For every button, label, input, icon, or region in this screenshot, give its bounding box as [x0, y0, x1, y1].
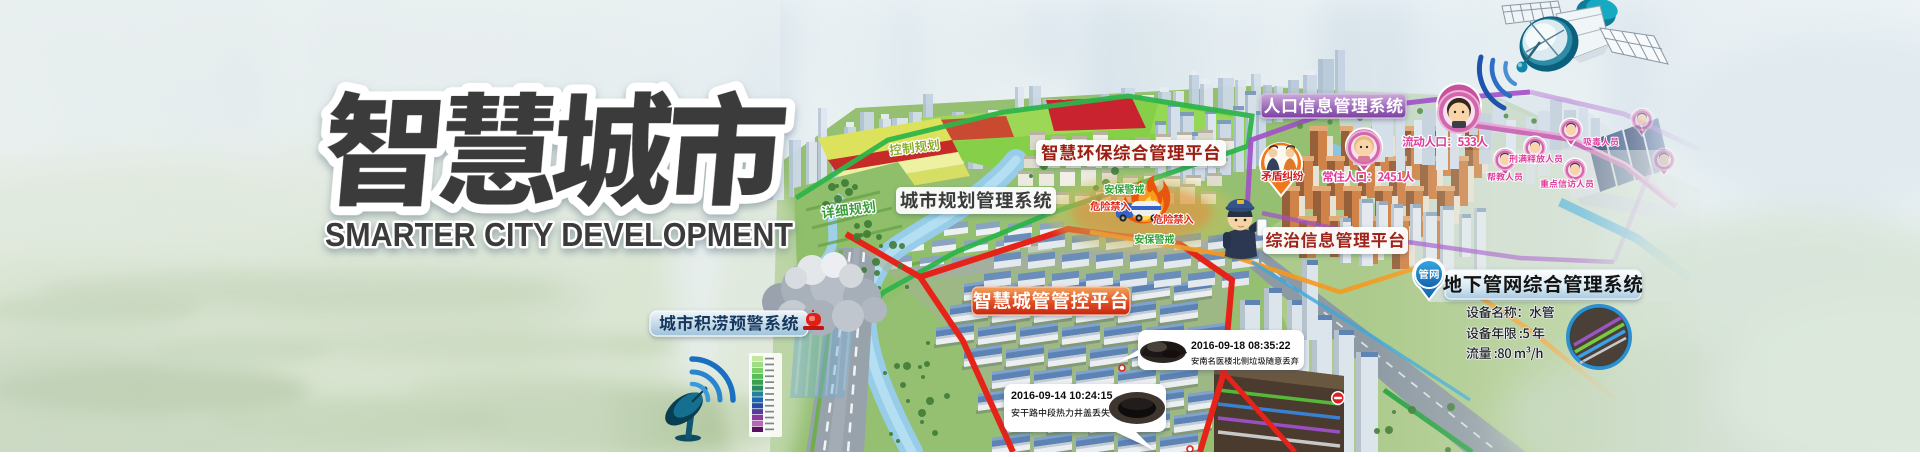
svg-text:SMARTER CITY DEVELOPMENT: SMARTER CITY DEVELOPMENT — [325, 216, 793, 253]
svg-text:2016-09-14 10:24:15: 2016-09-14 10:24:15 — [1011, 390, 1112, 402]
svg-text:2016-09-18 08:35:22: 2016-09-18 08:35:22 — [1191, 340, 1291, 352]
